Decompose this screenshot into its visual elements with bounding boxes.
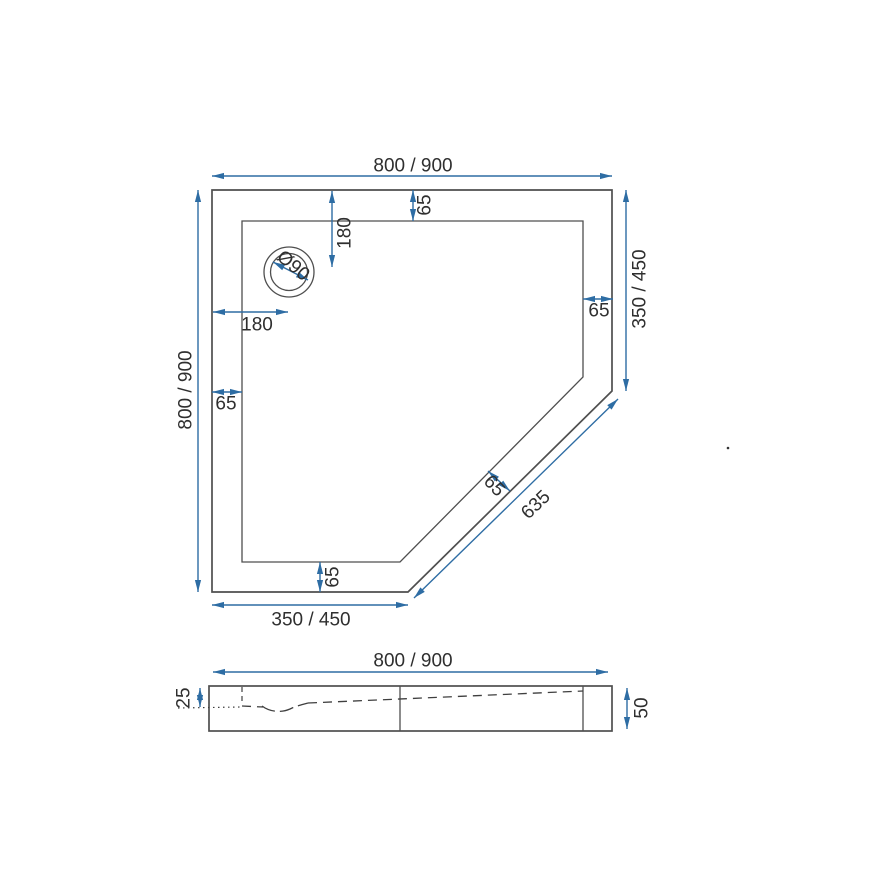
side-dimensions: 800 / 900 25 50 [174,651,653,730]
dim-drain-offset-horizontal-label: 180 [241,315,273,336]
side-view [178,686,612,731]
stray-mark [727,447,730,450]
plan-dimensions: 800 / 900 800 / 900 350 / 450 350 / 450 … [176,156,651,631]
tray-outer-edge [212,190,612,592]
dim-rim-left-label: 65 [215,394,236,415]
side-drain-dip [262,703,308,711]
dim-side-height-label: 50 [632,697,653,718]
dim-rim-right-label: 65 [588,301,609,322]
dim-right-height-label: 350 / 450 [630,249,651,328]
plan-view [212,190,612,592]
dim-left-height-label: 800 / 900 [176,350,197,429]
dim-side-depth-label: 25 [174,687,195,708]
dim-diagonal-length-line [414,399,618,598]
dim-side-width-label: 800 / 900 [373,651,452,672]
dim-bottom-width-label: 350 / 450 [271,610,350,631]
dim-top-width-label: 800 / 900 [373,156,452,177]
dim-rim-bottom-label: 65 [323,566,344,587]
side-floor-left-segment [242,706,263,707]
side-floor-slope [308,691,583,703]
dim-rim-top-label: 65 [415,194,436,215]
shower-tray-technical-drawing: 800 / 900 800 / 900 350 / 450 350 / 450 … [0,0,870,870]
dim-drain-offset-vertical-label: 180 [335,217,356,249]
